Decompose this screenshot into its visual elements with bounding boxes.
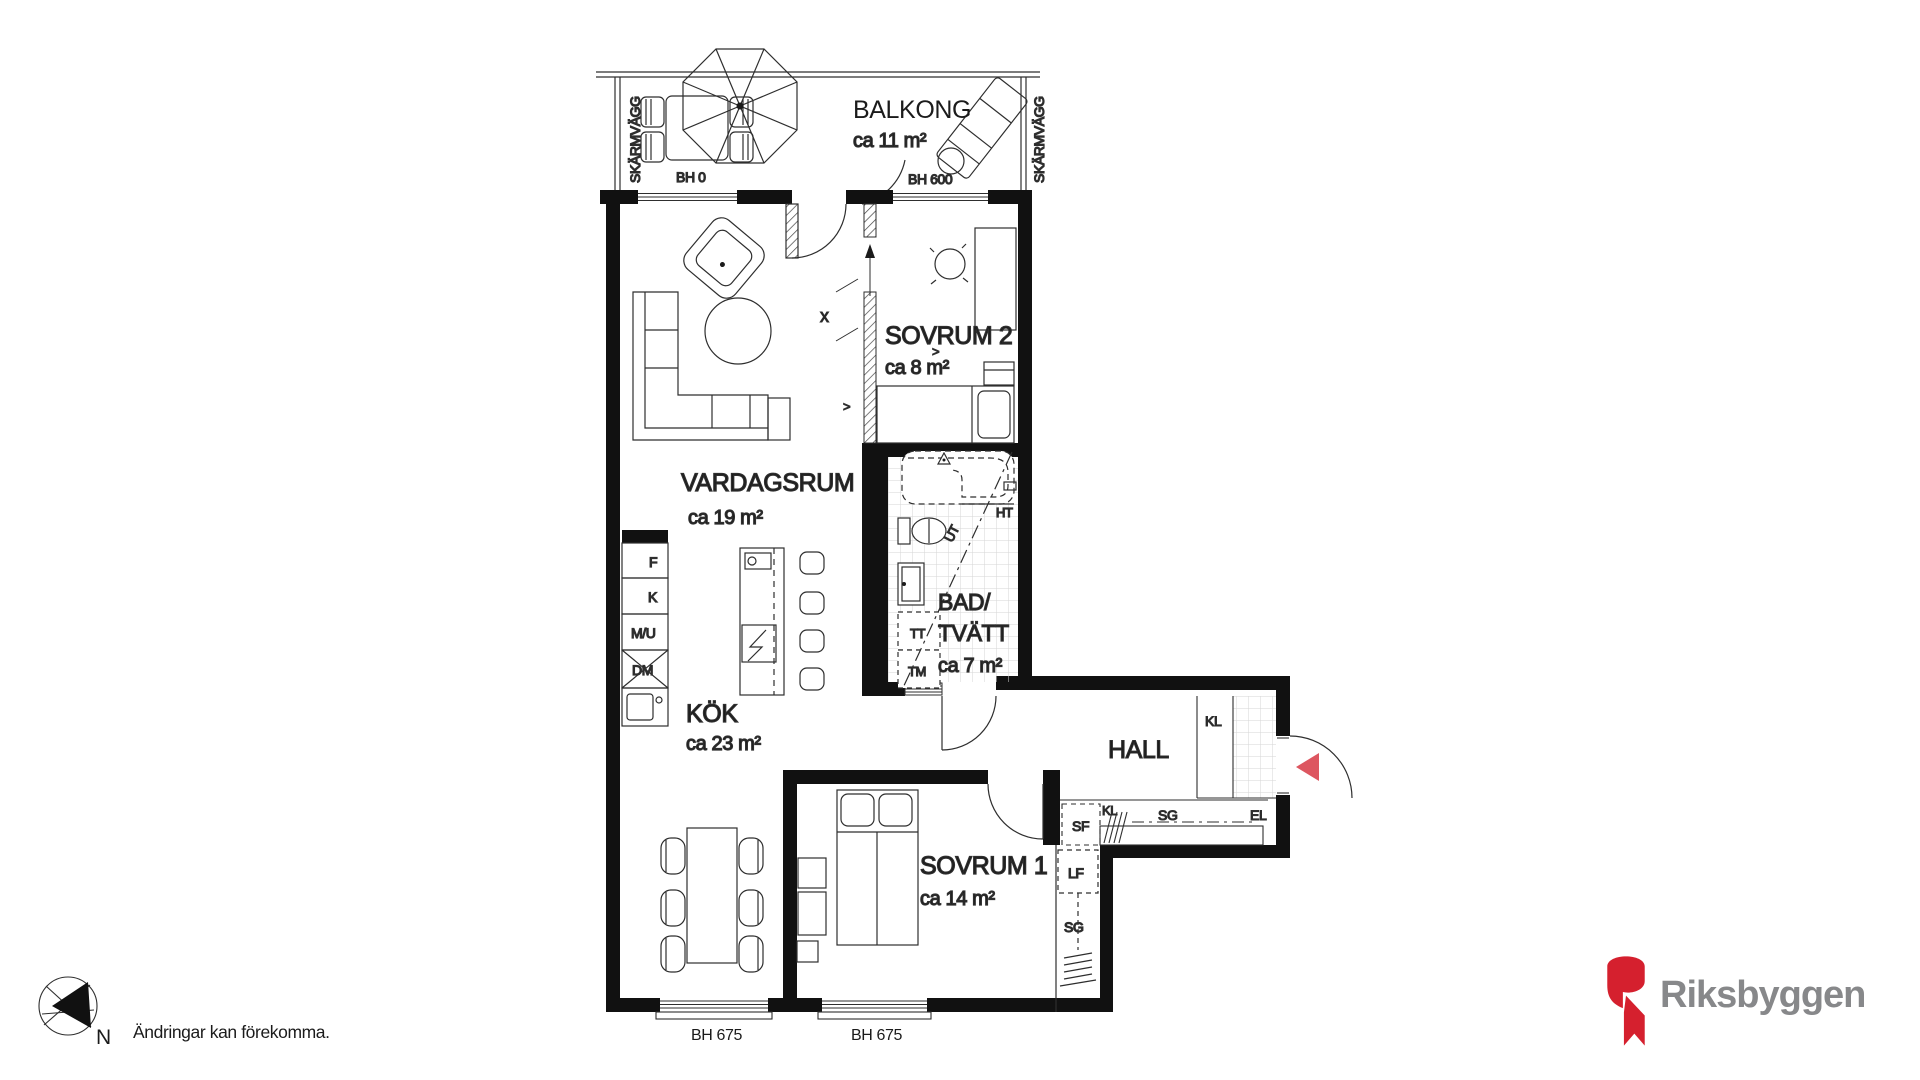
bedroom2-title: SOVRUM 2 bbox=[885, 322, 1012, 350]
sofa-icon bbox=[633, 292, 768, 440]
dryer-label: TT bbox=[910, 626, 926, 641]
floorplan-page: SKÄRMVÄGG SKÄRMVÄGG BALKONG ca 11 m² BH … bbox=[0, 0, 1920, 1080]
kitchen-sink-icon bbox=[622, 688, 668, 726]
riksbyggen-logo: Riksbyggen bbox=[1607, 956, 1865, 1045]
bedroom2: SOVRUM 2 ca 8 m² bbox=[877, 228, 1016, 443]
balcony-screen-left-label: SKÄRMVÄGG bbox=[627, 96, 643, 183]
disclaimer-text: Ändringar kan förekomma. bbox=[133, 1022, 330, 1042]
basin-icon bbox=[898, 563, 924, 605]
appliance-k bbox=[622, 578, 668, 614]
living-room: VARDAGSRUM ca 19 m² bbox=[633, 213, 854, 529]
kitchen-island-icon bbox=[740, 548, 784, 695]
balcony-screen-right-label: SKÄRMVÄGG bbox=[1031, 96, 1047, 183]
appliance-mu-label: M/U bbox=[631, 625, 656, 641]
balcony-door-leaf bbox=[786, 204, 798, 258]
bedroom1-area: ca 14 m² bbox=[920, 888, 995, 910]
wardrobe-sg-label: SG bbox=[1064, 919, 1083, 935]
linen-cabinet-label: LF bbox=[1068, 865, 1084, 881]
bathroom-title-1: BAD/ bbox=[938, 589, 991, 615]
balcony-sill-right-label: BH 600 bbox=[908, 171, 953, 187]
stool-icon bbox=[800, 552, 824, 574]
balcony-area: ca 11 m² bbox=[853, 130, 927, 152]
desk-chair-icon bbox=[935, 249, 965, 279]
slide-marker-label: x bbox=[820, 306, 829, 326]
coffee-table-icon bbox=[705, 298, 771, 364]
appliance-f-label: F bbox=[649, 554, 657, 570]
compass-icon bbox=[39, 977, 97, 1035]
sun-lounger-icon bbox=[935, 76, 1028, 179]
closet-sg-label: SG bbox=[1158, 807, 1177, 823]
appliance-dm-label: DM bbox=[632, 662, 653, 678]
hall-title: HALL bbox=[1108, 736, 1169, 764]
stool-icon bbox=[800, 592, 824, 614]
nightstand-icon bbox=[798, 892, 826, 935]
slide-arrow-a: > bbox=[843, 399, 850, 414]
appliance-f bbox=[622, 543, 668, 578]
bathroom-title-2: TVÄTT bbox=[938, 620, 1009, 646]
kitchen-title: KÖK bbox=[686, 700, 738, 728]
vent-hatch-icon bbox=[1060, 953, 1096, 986]
towel-rail-label: HT bbox=[996, 505, 1013, 520]
shoe-cabinet-label: SF bbox=[1072, 818, 1089, 834]
bed2-icon bbox=[877, 386, 1014, 443]
floorplan-drawing: SKÄRMVÄGG SKÄRMVÄGG BALKONG ca 11 m² BH … bbox=[0, 0, 1920, 1080]
balcony: SKÄRMVÄGG SKÄRMVÄGG BALKONG ca 11 m² BH … bbox=[596, 49, 1047, 204]
shower-icon bbox=[902, 451, 1014, 504]
riksbyggen-mark-icon bbox=[1607, 956, 1644, 1045]
hall-closet-top-label: KL bbox=[1205, 713, 1222, 729]
bedroom2-area: ca 8 m² bbox=[885, 357, 950, 379]
bathroom: TT TM HT UT BAD/ TVÄTT ca 7 m² bbox=[888, 451, 1018, 690]
bedroom1-title: SOVRUM 1 bbox=[920, 852, 1047, 880]
sill-bottom-left-label: BH 675 bbox=[691, 1027, 742, 1044]
entry-arrow-icon bbox=[1296, 753, 1319, 781]
side-table-icon bbox=[768, 398, 790, 440]
electric-label: EL bbox=[1250, 807, 1267, 823]
bathroom-area: ca 7 m² bbox=[938, 655, 1003, 677]
stool-icon bbox=[800, 630, 824, 652]
hall: HALL KL SF KL SG EL bbox=[1060, 696, 1276, 845]
appliance-k-label: K bbox=[648, 589, 658, 605]
nightstand-icon bbox=[798, 858, 826, 888]
compass-n-label: N bbox=[96, 1026, 111, 1049]
nightstand-icon bbox=[984, 362, 1014, 385]
living-room-area: ca 19 m² bbox=[688, 507, 763, 529]
parasol-icon bbox=[683, 49, 797, 163]
balcony-table-icon bbox=[641, 96, 753, 162]
stool-icon bbox=[797, 941, 818, 962]
bed1-icon bbox=[837, 790, 918, 945]
closet-kl-label: KL bbox=[1102, 803, 1117, 818]
balcony-title: BALKONG bbox=[853, 96, 971, 124]
living-room-title: VARDAGSRUM bbox=[681, 469, 854, 497]
stool-icon bbox=[800, 668, 824, 690]
balcony-sill-left-label: BH 0 bbox=[676, 169, 706, 185]
dining-table-icon bbox=[661, 828, 763, 972]
riksbyggen-wordmark: Riksbyggen bbox=[1660, 974, 1865, 1016]
kitchen-area: ca 23 m² bbox=[686, 733, 761, 755]
sill-bottom-right-label: BH 675 bbox=[851, 1027, 902, 1044]
desk-icon bbox=[975, 228, 1016, 330]
washer-label: TM bbox=[908, 664, 926, 679]
armchair-icon bbox=[679, 213, 769, 303]
toilet-icon bbox=[898, 518, 946, 544]
